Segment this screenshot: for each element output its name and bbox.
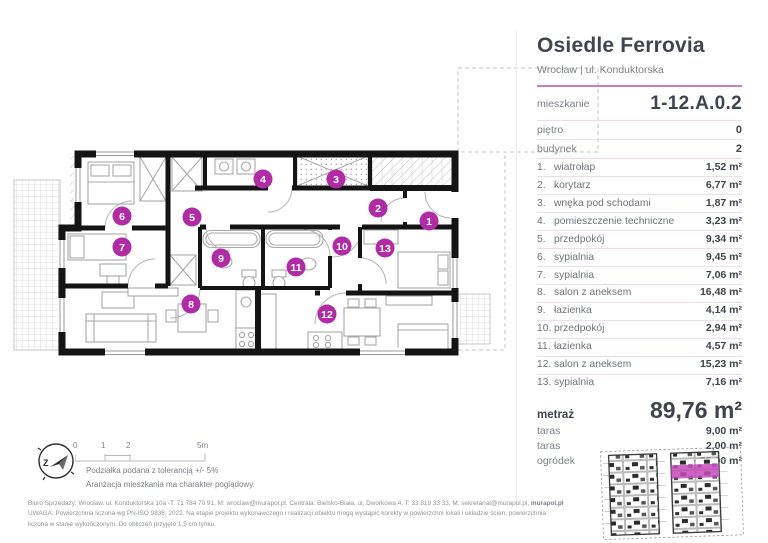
room-row: 3.wnęka pod schodami1,87 m² <box>537 195 742 213</box>
unit-label: mieszkanie <box>537 98 650 110</box>
room-number: 11. <box>537 342 554 353</box>
room-row: 6.sypialnia9,45 m² <box>537 249 742 267</box>
room-row: 1.wiatrołap1,52 m² <box>537 159 742 177</box>
room-area: 16,48 m² <box>700 287 742 298</box>
accent-divider <box>537 85 742 87</box>
room-area: 2,94 m² <box>706 323 742 334</box>
footer-line-1: Biuro Sprzedaży: Wrocław, ul. Konduktors… <box>28 499 628 509</box>
room-name: sypialnia <box>554 378 706 389</box>
room-marker-label: 1 <box>426 216 432 228</box>
room-marker-label: 4 <box>260 174 266 186</box>
room-area: 9,45 m² <box>706 252 742 263</box>
total-area-row: metraż 89,76 m² <box>537 392 742 425</box>
room-row: 5.przedpokój9,34 m² <box>537 231 742 249</box>
terrace-right <box>458 294 490 344</box>
room-name: sypialnia <box>554 253 706 264</box>
room-name: salon z aneksem <box>554 360 700 371</box>
scale-tick-5m: 5m <box>197 441 208 450</box>
page-title: Osiedle Ferrovia <box>537 34 742 58</box>
room-row: 13.sypialnia7,16 m² <box>537 375 742 392</box>
room-row: 2.korytarz6,77 m² <box>537 177 742 195</box>
room-area: 6,77 m² <box>706 180 742 191</box>
room-name: łazienka <box>554 306 706 317</box>
scale-note: Podziałka podana z tolerancją +/- 5% <box>86 466 218 475</box>
room-area: 1,87 m² <box>706 198 742 209</box>
extra-value: 9,00 m² <box>706 426 742 438</box>
building-label: budynek <box>537 143 736 155</box>
unit-row-pietro: piętro 0 <box>537 121 742 140</box>
room-number: 2. <box>537 181 554 192</box>
unit-row-budynek: budynek 2 <box>537 140 742 159</box>
room-row: 7.sypialnia7,06 m² <box>537 267 742 285</box>
room-area: 7,16 m² <box>706 377 742 388</box>
room-list: 1.wiatrołap1,52 m²2.korytarz6,77 m²3.wnę… <box>537 159 742 392</box>
scale-tick-0: 0 <box>73 441 77 450</box>
site-highlighted-unit <box>671 464 719 479</box>
room-number: 5. <box>537 235 554 246</box>
room-name: wiatrołap <box>554 163 706 174</box>
unit-number: 1-12.A.0.2 <box>650 93 742 115</box>
room-name: pomieszczenie techniczne <box>554 217 706 228</box>
room-row: 10.przedpokój2,94 m² <box>537 321 742 339</box>
room-row: 4.pomieszczenie techniczne3,23 m² <box>537 213 742 231</box>
room-marker-label: 12 <box>321 309 333 321</box>
room-area: 15,23 m² <box>700 359 742 370</box>
room-marker-label: 10 <box>336 241 348 253</box>
compass-letter: Z <box>43 458 49 468</box>
room-name: salon z aneksem <box>554 288 700 299</box>
room-marker-label: 3 <box>333 174 339 186</box>
room-row: 11.łazienka4,57 m² <box>537 339 742 357</box>
room-marker-label: 13 <box>379 243 391 255</box>
room-name: przedpokój <box>554 324 706 335</box>
room-number: 6. <box>537 253 554 264</box>
panel-divider <box>516 30 517 508</box>
room-name: sypialnia <box>554 271 706 282</box>
footer-line-3: liczona w stanie wykończonym. Do oblicze… <box>28 520 628 530</box>
info-panel: Osiedle Ferrovia Wrocław | ul. Konduktor… <box>537 34 742 470</box>
room-area: 9,34 m² <box>706 234 742 245</box>
scale-tick-1: 1 <box>101 441 105 450</box>
room-row: 12.salon z aneksem15,23 m² <box>537 357 742 375</box>
room-marker-label: 5 <box>189 212 195 224</box>
room-number: 8. <box>537 288 554 299</box>
scale-tick-2: 2 <box>126 441 130 450</box>
layout-note: Aranżacja mieszkania ma charakter pogląd… <box>86 480 255 489</box>
page-subtitle: Wrocław | ul. Konduktorska <box>537 64 742 76</box>
extra-label: taras <box>537 426 706 438</box>
room-name: wnęka pod schodami <box>554 199 706 210</box>
extra-area-row: taras9,00 m² <box>537 425 742 440</box>
room-name: korytarz <box>554 181 706 192</box>
room-number: 1. <box>537 163 554 174</box>
room-area: 7,06 m² <box>706 270 742 281</box>
floor-plan: 12345678910111213 <box>10 58 610 478</box>
footer-brand: murapol.pl <box>531 500 564 507</box>
staircase <box>372 156 453 186</box>
room-number: 10. <box>537 324 554 335</box>
total-area-value: 89,76 m² <box>650 397 742 424</box>
floor-value: 0 <box>736 124 742 136</box>
footer: Biuro Sprzedaży: Wrocław, ul. Konduktors… <box>28 499 628 530</box>
room-area: 4,57 m² <box>706 341 742 352</box>
room-area: 4,14 m² <box>706 305 742 316</box>
room-marker-label: 9 <box>218 253 224 265</box>
room-marker-label: 11 <box>290 262 301 274</box>
room-area: 3,23 m² <box>706 216 742 227</box>
room-number: 9. <box>537 306 554 317</box>
unit-row-mieszkanie: mieszkanie 1-12.A.0.2 <box>537 88 742 121</box>
room-area: 1,52 m² <box>706 162 742 173</box>
scale-bar <box>75 450 215 464</box>
footer-line-2: UWAGA: Powierzchnia liczona wg PN-ISO 98… <box>28 509 628 519</box>
room-number: 7. <box>537 271 554 282</box>
compass-icon: Z <box>35 440 77 482</box>
building-value: 2 <box>736 143 742 155</box>
terrace-left <box>14 180 60 350</box>
room-marker-label: 7 <box>119 242 125 254</box>
room-row: 9.łazienka4,14 m² <box>537 303 742 321</box>
room-row: 8.salon z aneksem16,48 m² <box>537 285 742 303</box>
room-number: 13. <box>537 378 554 389</box>
room-number: 3. <box>537 199 554 210</box>
total-area-label: metraż <box>537 409 650 421</box>
room-name: łazienka <box>554 342 706 353</box>
room-marker-label: 6 <box>119 211 125 223</box>
room-name: przedpokój <box>554 235 706 246</box>
room-marker-label: 2 <box>375 203 381 215</box>
floor-label: piętro <box>537 124 736 136</box>
room-number: 12. <box>537 360 554 371</box>
room-marker-label: 8 <box>188 299 194 311</box>
room-number: 4. <box>537 217 554 228</box>
